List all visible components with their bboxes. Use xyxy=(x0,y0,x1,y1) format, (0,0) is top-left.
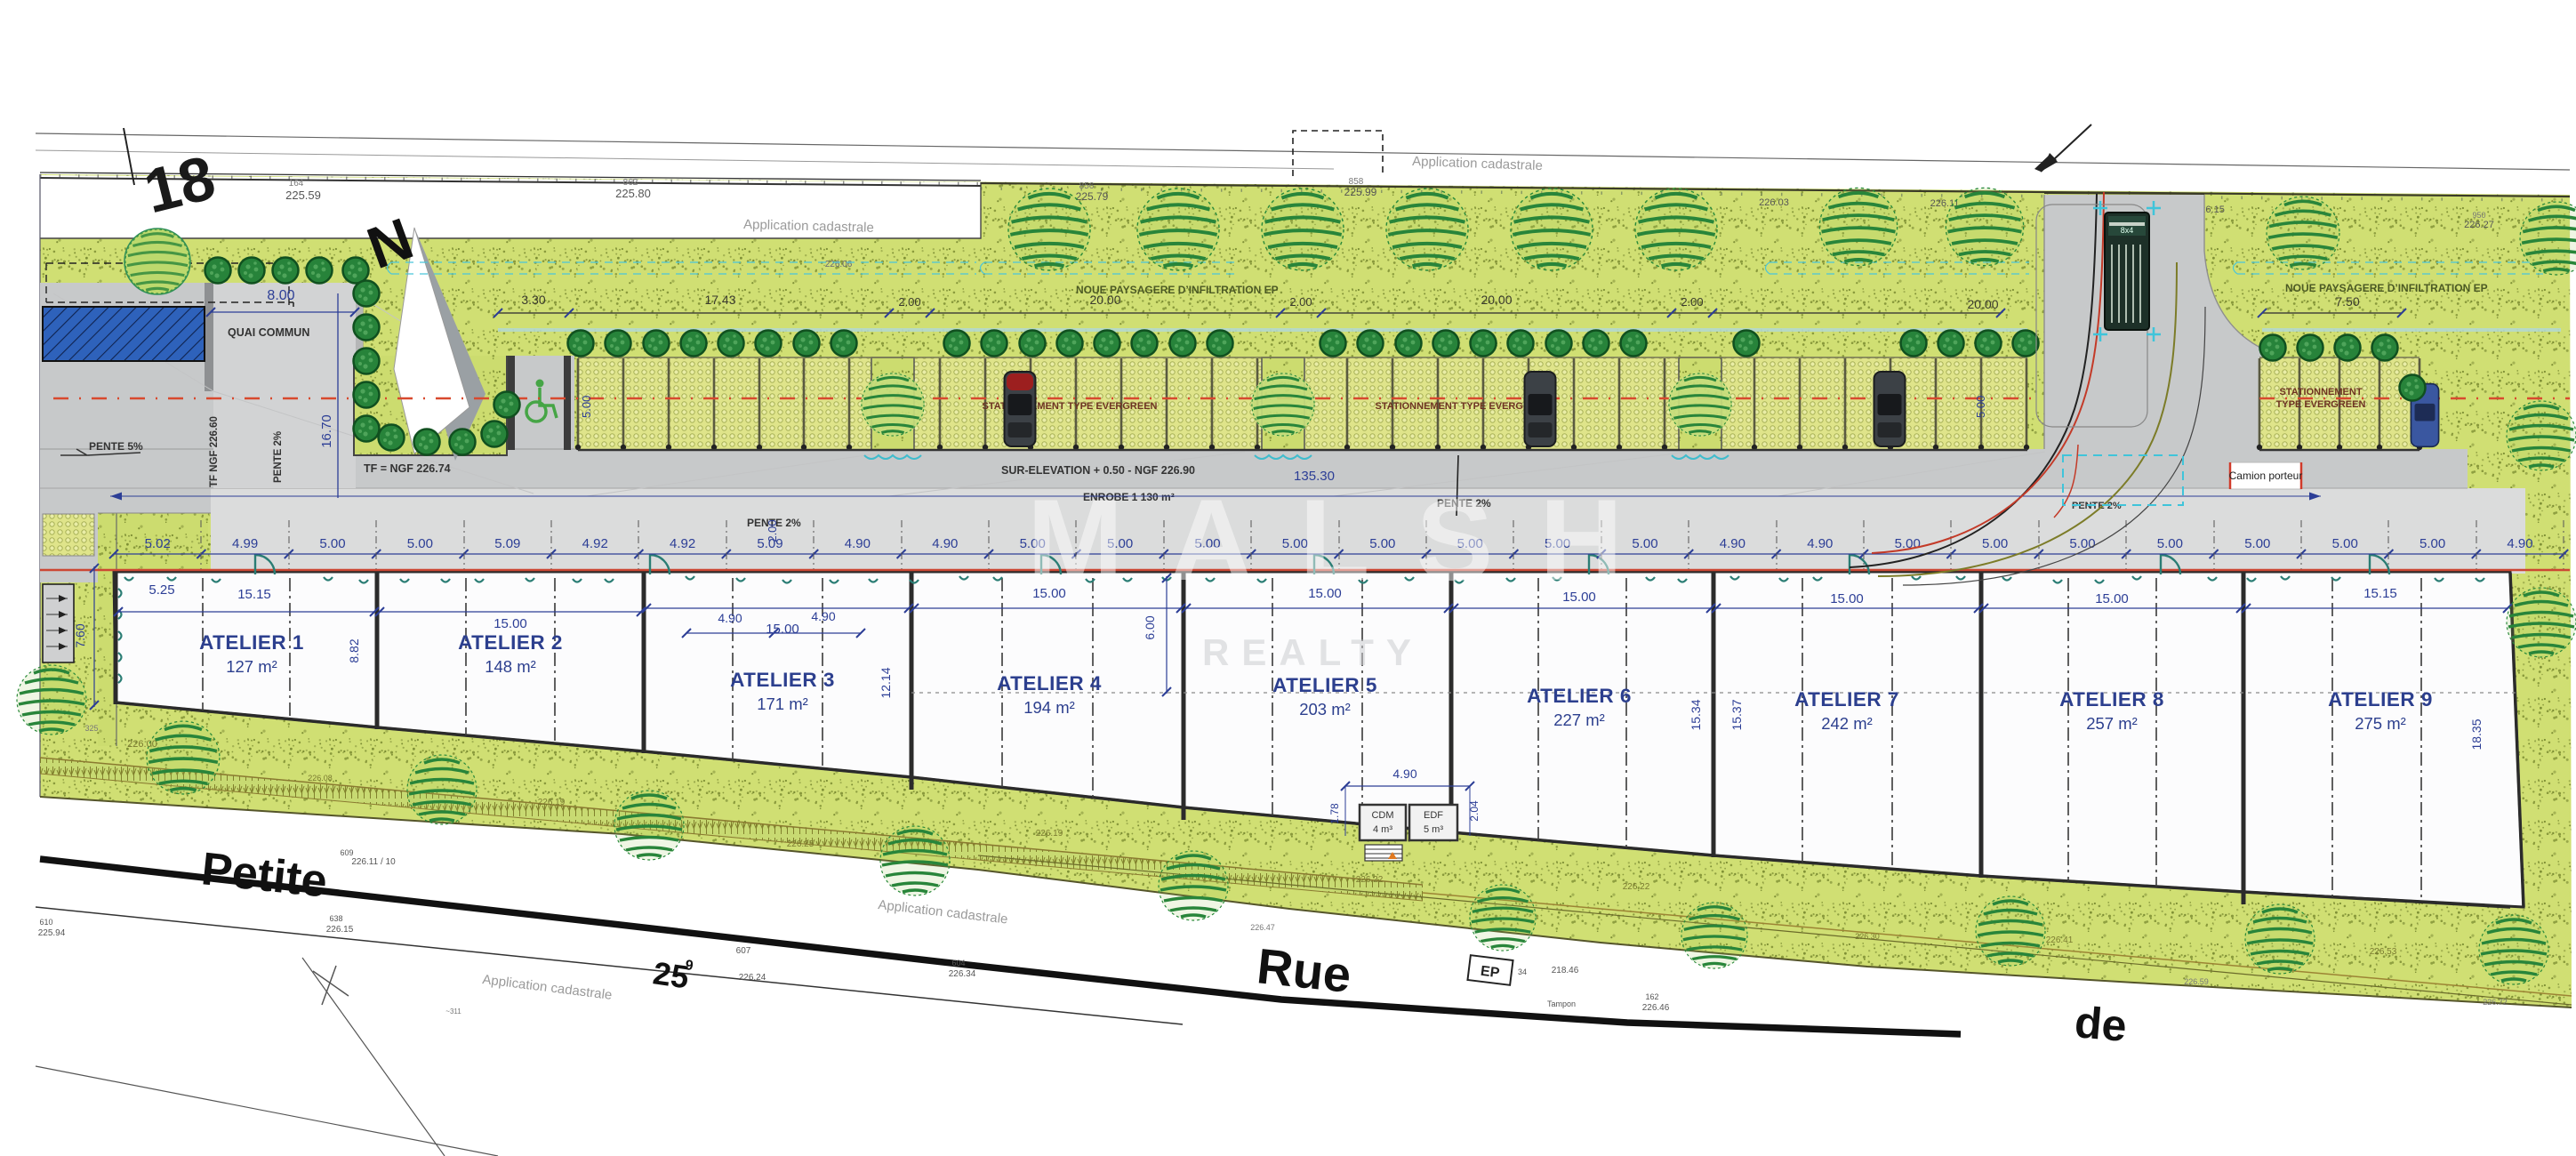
svg-text:Rue: Rue xyxy=(1255,937,1354,1003)
svg-text:607: 607 xyxy=(736,946,751,956)
svg-text:TF = NGF 226.74: TF = NGF 226.74 xyxy=(364,462,451,475)
svg-text:5.00: 5.00 xyxy=(407,536,433,551)
svg-text:226.15: 226.15 xyxy=(326,925,354,935)
svg-text:2.00: 2.00 xyxy=(898,295,920,309)
svg-text:NOUE PAYSAGERE D’INFILTRATION: NOUE PAYSAGERE D’INFILTRATION EP xyxy=(2285,282,2488,294)
svg-text:226.47: 226.47 xyxy=(1250,923,1275,932)
svg-text:5.09: 5.09 xyxy=(494,536,520,551)
svg-text:6.00: 6.00 xyxy=(1143,615,1157,639)
svg-text:5.00: 5.00 xyxy=(1974,396,1987,418)
svg-text:171 m²: 171 m² xyxy=(757,694,808,713)
svg-text:226.34: 226.34 xyxy=(949,969,976,979)
svg-text:4.90: 4.90 xyxy=(1720,536,1745,551)
svg-text:ATELIER 3: ATELIER 3 xyxy=(730,669,835,691)
svg-text:de: de xyxy=(2073,997,2129,1051)
svg-text:17.43: 17.43 xyxy=(704,293,735,307)
svg-text:5.09: 5.09 xyxy=(757,536,782,551)
svg-text:225.80: 225.80 xyxy=(615,187,651,200)
svg-text:2.00: 2.00 xyxy=(1681,295,1703,309)
svg-text:5.00: 5.00 xyxy=(2332,536,2358,551)
svg-text:15.00: 15.00 xyxy=(1830,591,1864,606)
svg-text:127 m²: 127 m² xyxy=(226,657,277,676)
svg-text:TYPE EVERGREEN: TYPE EVERGREEN xyxy=(2276,399,2366,410)
svg-text:225.94: 225.94 xyxy=(38,928,66,938)
svg-text:610: 610 xyxy=(39,918,52,927)
svg-text:20.00: 20.00 xyxy=(1967,297,1998,311)
svg-text:ATELIER 1: ATELIER 1 xyxy=(199,631,304,654)
svg-text:12.14: 12.14 xyxy=(879,667,893,698)
svg-text:226.24: 226.24 xyxy=(739,973,766,983)
svg-text:242 m²: 242 m² xyxy=(1821,714,1873,733)
svg-text:226.11 / 10: 226.11 / 10 xyxy=(351,857,396,867)
svg-text:4.90: 4.90 xyxy=(2507,536,2532,551)
svg-text:226.22: 226.22 xyxy=(1356,875,1384,885)
svg-text:34: 34 xyxy=(1518,967,1527,976)
svg-text:7.50: 7.50 xyxy=(2335,294,2359,309)
svg-text:226.72: 226.72 xyxy=(2483,998,2508,1007)
svg-text:225.79: 225.79 xyxy=(1076,190,1109,203)
svg-text:4.92: 4.92 xyxy=(670,536,695,551)
svg-text:226.46: 226.46 xyxy=(1642,1003,1670,1013)
svg-text:4.90: 4.90 xyxy=(932,536,958,551)
svg-text:PENTE 2%: PENTE 2% xyxy=(273,431,284,483)
svg-text:5.02: 5.02 xyxy=(145,536,171,551)
svg-text:15.00: 15.00 xyxy=(494,616,527,631)
svg-text:4 m³: 4 m³ xyxy=(1373,824,1392,835)
svg-text:226.08: 226.08 xyxy=(308,774,333,783)
svg-text:~311: ~311 xyxy=(445,1007,461,1016)
svg-text:226.03: 226.03 xyxy=(1759,197,1789,208)
svg-text:8.00: 8.00 xyxy=(267,288,294,303)
svg-text:20.00: 20.00 xyxy=(1481,293,1512,307)
svg-text:638: 638 xyxy=(329,914,342,923)
svg-text:EP: EP xyxy=(1480,964,1501,982)
svg-text:7.60: 7.60 xyxy=(73,623,87,647)
svg-text:226.53: 226.53 xyxy=(2370,947,2397,957)
svg-text:TF NGF 226.60: TF NGF 226.60 xyxy=(209,416,220,487)
svg-text:162: 162 xyxy=(1645,992,1658,1001)
svg-text:225.99: 225.99 xyxy=(1344,186,1377,198)
svg-text:1.78: 1.78 xyxy=(1328,803,1341,824)
svg-text:226.00: 226.00 xyxy=(127,739,157,750)
svg-text:ATELIER 9: ATELIER 9 xyxy=(2328,688,2433,710)
svg-text:5.00: 5.00 xyxy=(2420,536,2445,551)
svg-text:164: 164 xyxy=(289,179,304,189)
svg-text:203 m²: 203 m² xyxy=(1299,700,1351,718)
svg-text:8.82: 8.82 xyxy=(347,638,361,662)
svg-text:257 m²: 257 m² xyxy=(2086,714,2138,733)
svg-text:EDF: EDF xyxy=(1424,810,1443,821)
svg-text:226.27: 226.27 xyxy=(2464,220,2494,230)
svg-text:16.70: 16.70 xyxy=(319,414,334,448)
svg-text:ATELIER 2: ATELIER 2 xyxy=(458,631,563,654)
svg-text:226.25: 226.25 xyxy=(787,839,815,849)
svg-text:CDM: CDM xyxy=(1371,810,1393,821)
svg-text:5.25: 5.25 xyxy=(148,582,174,598)
svg-text:4.90: 4.90 xyxy=(845,536,871,551)
svg-text:604: 604 xyxy=(951,959,965,967)
svg-text:ATELIER 4: ATELIER 4 xyxy=(997,672,1102,694)
svg-text:5.00: 5.00 xyxy=(2244,536,2270,551)
svg-text:15.37: 15.37 xyxy=(1729,699,1744,730)
svg-text:950: 950 xyxy=(2472,211,2485,220)
svg-text:275 m²: 275 m² xyxy=(2355,714,2406,733)
svg-text:2.00: 2.00 xyxy=(1289,295,1312,309)
svg-text:ATELIER 7: ATELIER 7 xyxy=(1794,688,1899,710)
svg-text:325: 325 xyxy=(84,724,98,733)
svg-text:226.19: 226.19 xyxy=(1036,829,1063,839)
svg-text:5.00: 5.00 xyxy=(580,396,593,418)
svg-text:20.00: 20.00 xyxy=(1089,293,1120,307)
svg-text:QUAI COMMUN: QUAI COMMUN xyxy=(228,326,309,339)
svg-text:5.00: 5.00 xyxy=(1982,536,2008,551)
svg-text:ATELIER 6: ATELIER 6 xyxy=(1527,685,1632,707)
svg-text:4.90: 4.90 xyxy=(718,611,742,625)
svg-text:8x4: 8x4 xyxy=(2121,226,2134,235)
svg-text:4.92: 4.92 xyxy=(582,536,608,551)
svg-text:15.34: 15.34 xyxy=(1689,699,1703,730)
svg-text:5.00: 5.00 xyxy=(319,536,345,551)
svg-text:15.15: 15.15 xyxy=(237,587,271,602)
svg-text:4.99: 4.99 xyxy=(232,536,258,551)
svg-text:5 m³: 5 m³ xyxy=(1424,824,1443,835)
svg-text:227 m²: 227 m² xyxy=(1553,710,1605,729)
svg-text:609: 609 xyxy=(340,848,353,857)
svg-text:4.90: 4.90 xyxy=(1807,536,1833,551)
svg-text:148 m²: 148 m² xyxy=(485,657,536,676)
svg-text:4.90: 4.90 xyxy=(811,609,835,623)
svg-text:3.30: 3.30 xyxy=(521,293,545,307)
svg-text:226.19: 226.19 xyxy=(538,798,566,807)
svg-text:REALTY: REALTY xyxy=(1202,631,1424,673)
svg-text:226.30: 226.30 xyxy=(1855,932,1880,941)
svg-text:226.41: 226.41 xyxy=(2046,935,2074,945)
svg-text:18.35: 18.35 xyxy=(2469,718,2484,750)
svg-text:4.90: 4.90 xyxy=(1392,767,1416,781)
svg-text:ATELIER 5: ATELIER 5 xyxy=(1272,674,1377,696)
svg-text:225.59: 225.59 xyxy=(285,189,321,202)
svg-text:5.00: 5.00 xyxy=(2157,536,2183,551)
svg-text:15.00: 15.00 xyxy=(2095,591,2129,606)
svg-text:218.46: 218.46 xyxy=(1552,966,1579,975)
svg-text:226.22: 226.22 xyxy=(1623,882,1650,892)
svg-text:Camion porteur: Camion porteur xyxy=(2229,470,2303,482)
svg-text:Tampon: Tampon xyxy=(1547,999,1576,1008)
svg-text:MALSH: MALSH xyxy=(1027,475,1669,605)
svg-text:ATELIER 8: ATELIER 8 xyxy=(2059,688,2164,710)
svg-text:226.59: 226.59 xyxy=(2184,977,2209,986)
svg-text:15.15: 15.15 xyxy=(2363,586,2397,601)
svg-text:5.00: 5.00 xyxy=(2069,536,2095,551)
svg-text:226.06: 226.06 xyxy=(825,260,853,269)
svg-text:PENTE 5%: PENTE 5% xyxy=(89,440,143,453)
svg-text:15.00: 15.00 xyxy=(766,622,799,637)
svg-text:194 m²: 194 m² xyxy=(1023,698,1075,717)
svg-text:STATIONNEMENT: STATIONNEMENT xyxy=(2279,387,2362,397)
